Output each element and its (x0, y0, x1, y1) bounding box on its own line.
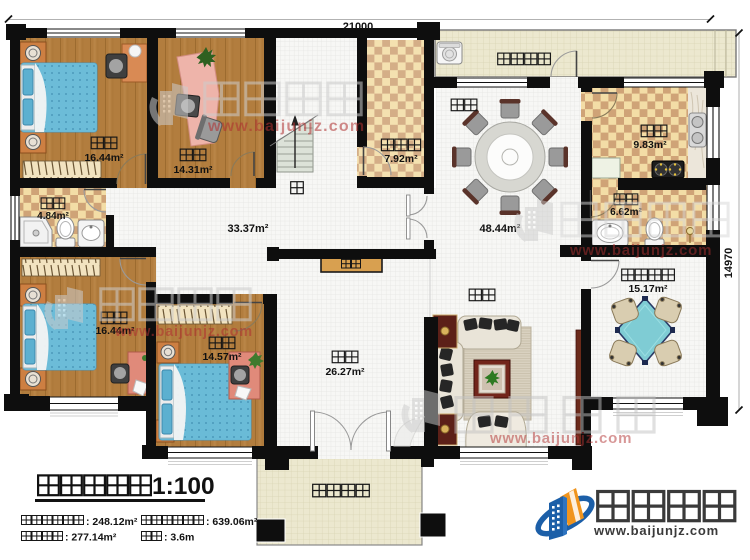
svg-text:www.baijunjz.com: www.baijunjz.com (114, 324, 253, 340)
svg-text:9.83m²: 9.83m² (633, 139, 667, 151)
svg-text:26.27m²: 26.27m² (325, 366, 365, 378)
svg-text:14970: 14970 (723, 248, 735, 279)
svg-text:6.62m²: 6.62m² (610, 207, 642, 218)
svg-text:: 277.14m²: : 277.14m² (65, 532, 117, 544)
svg-text:4.84m²: 4.84m² (37, 211, 69, 222)
svg-text:www.baijunjz.com: www.baijunjz.com (489, 430, 632, 447)
svg-text:33.37m²: 33.37m² (228, 223, 269, 235)
svg-text:www.baijunjz.com: www.baijunjz.com (207, 118, 365, 135)
svg-text:7.92m²: 7.92m² (384, 153, 418, 165)
svg-text:21000: 21000 (343, 21, 374, 33)
svg-text:: 639.06m²: : 639.06m² (206, 516, 258, 528)
svg-text:: 3.6m: : 3.6m (164, 532, 194, 544)
svg-text:16.44m²: 16.44m² (84, 152, 124, 164)
svg-text:1:100: 1:100 (152, 473, 215, 500)
svg-text:15.17m²: 15.17m² (628, 283, 668, 295)
svg-text:www.baijunjz.com: www.baijunjz.com (569, 242, 712, 259)
svg-text:www.baijunjz.com: www.baijunjz.com (593, 523, 719, 538)
svg-text:14.57m²: 14.57m² (202, 351, 242, 363)
svg-text:14.31m²: 14.31m² (173, 164, 213, 176)
svg-text:: 248.12m²: : 248.12m² (86, 516, 138, 528)
